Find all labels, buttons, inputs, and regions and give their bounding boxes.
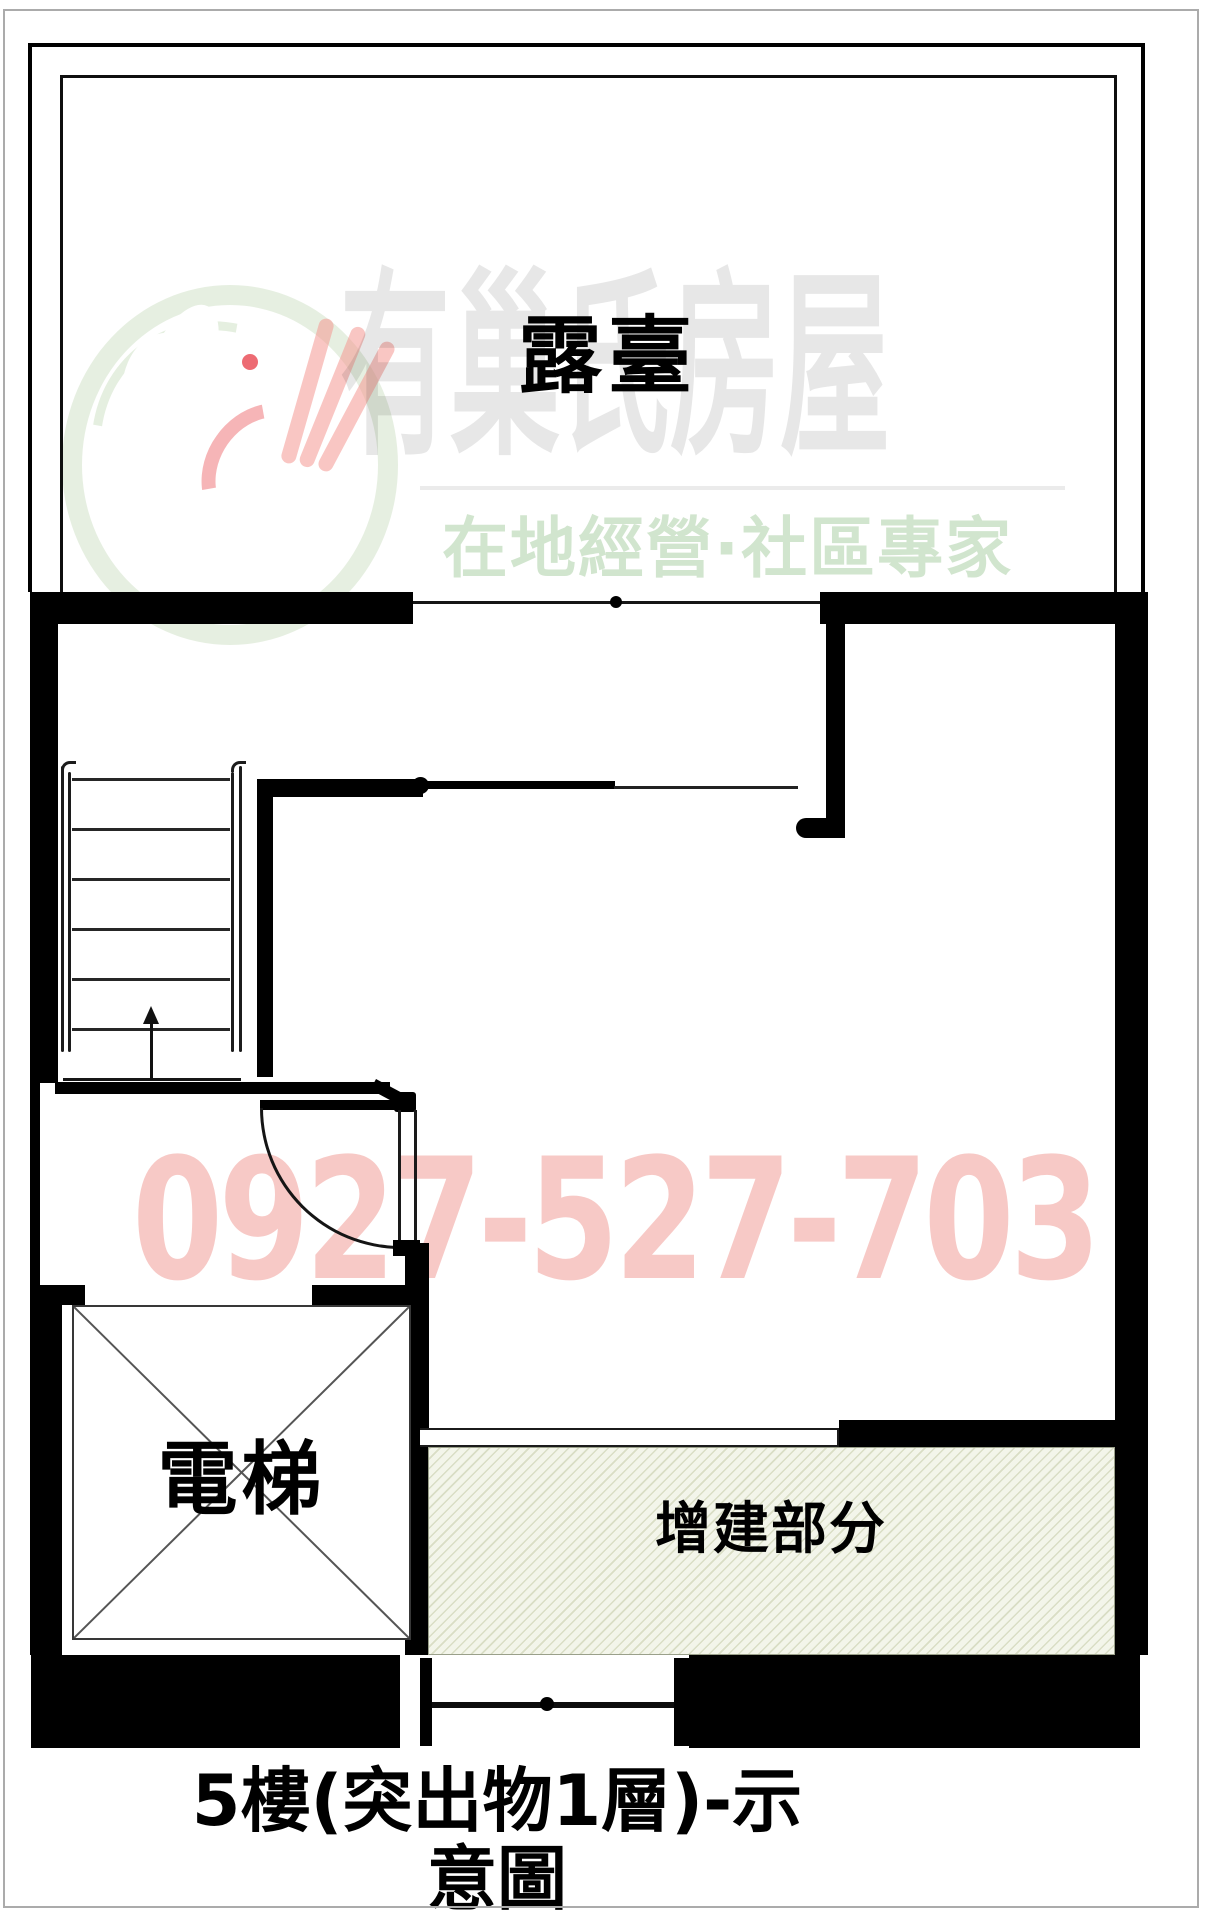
wall-elevator-front-left xyxy=(30,1285,85,1305)
stair-step xyxy=(72,828,230,831)
window-line-bold xyxy=(427,781,615,789)
wall-partition-b xyxy=(257,779,423,797)
stair-rail-hook xyxy=(61,761,76,772)
door-jamb-line xyxy=(414,1110,417,1243)
stair-rail-right-outer xyxy=(239,766,242,1052)
window-tick xyxy=(404,592,413,624)
wall-east xyxy=(1115,624,1148,1655)
wall-west-upper xyxy=(30,592,58,1083)
wall-terrace-south-left xyxy=(31,592,408,624)
drawing-title-line1: 5樓(突出物1層)-示 xyxy=(97,1762,897,1840)
elevator-label: 電梯 xyxy=(158,1415,326,1531)
window-line-thin xyxy=(614,786,798,789)
stair-step xyxy=(72,778,230,781)
addition-label: 增建部分 xyxy=(571,1502,971,1558)
stair-direction-arrow-shaft xyxy=(150,1022,153,1080)
window-tick xyxy=(420,1658,432,1746)
wall-elevator-front-right xyxy=(312,1285,429,1305)
wall-addition-north xyxy=(839,1420,1148,1447)
stair-step xyxy=(72,928,230,931)
elevator-shaft-box: 電梯 xyxy=(72,1305,411,1640)
addition-window-band xyxy=(412,1428,839,1447)
wall-terrace-south-right xyxy=(824,592,1148,624)
wall-west-lower xyxy=(30,1285,62,1655)
stair-step xyxy=(72,978,230,981)
terrace-label: 露臺 xyxy=(448,314,768,398)
window-tick xyxy=(820,592,829,624)
floorplan-page: 有巢氏房屋 在地經營·社區專家 0927-527-703 xyxy=(0,0,1208,1920)
wall-partition-c xyxy=(257,779,273,1077)
stair-rail-right-inner xyxy=(231,772,234,1052)
stair-rail-hook xyxy=(231,761,246,772)
window-mullion-dot xyxy=(610,596,622,608)
door-jamb-line xyxy=(398,1110,401,1243)
stair-direction-arrow-head xyxy=(143,1006,159,1024)
stair-rail-left-inner xyxy=(68,772,71,1052)
wall-partition-a-endcap xyxy=(796,818,845,838)
stair-step xyxy=(72,878,230,881)
drawing-title: 5樓(突出物1層)-示 意圖 xyxy=(97,1762,897,1919)
window-tick xyxy=(412,1428,420,1447)
window-tick xyxy=(674,1658,689,1746)
wall-partition-a xyxy=(826,624,845,837)
wall-stair-south xyxy=(55,1082,390,1094)
drawing-title-line2: 意圖 xyxy=(97,1840,897,1918)
window-mullion-dot xyxy=(540,1697,554,1711)
stair-rail-left-outer xyxy=(61,766,64,1052)
wall-west-lobby xyxy=(30,1083,40,1285)
